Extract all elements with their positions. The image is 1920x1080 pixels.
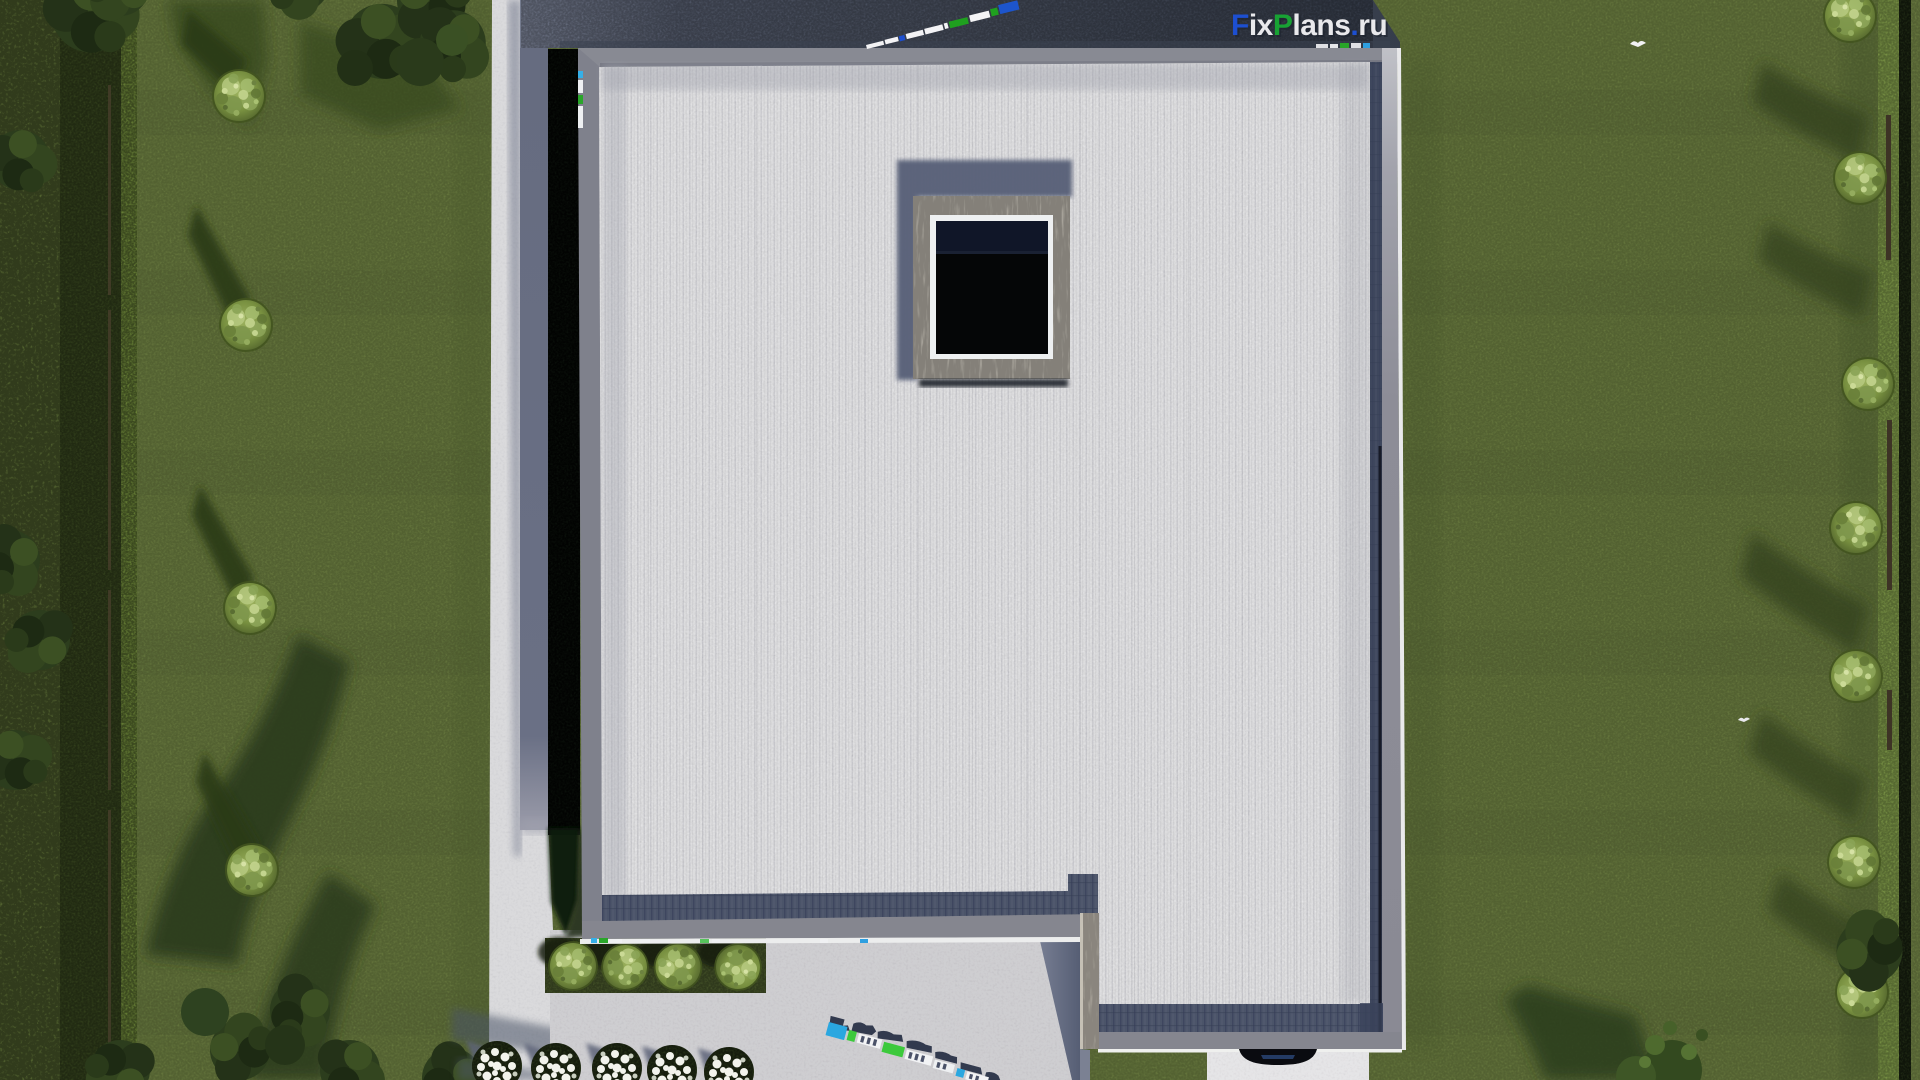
svg-text:FixPlans.ru: FixPlans.ru <box>1231 9 1387 42</box>
